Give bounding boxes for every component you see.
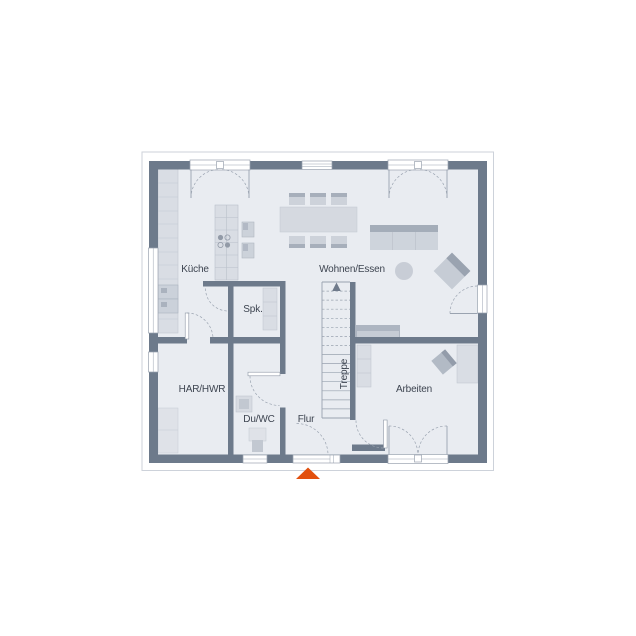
room-label-har-hwr: HAR/HWR <box>179 384 226 395</box>
room-label-arbeiten: Arbeiten <box>396 384 432 395</box>
entrance-arrow-icon <box>296 468 320 480</box>
wall-har-divider <box>228 287 234 456</box>
floor-plan: Küche Wohnen/Essen Spk. HAR/HWR Du/WC Fl… <box>0 0 636 636</box>
door-leaf-arbeiten <box>384 420 388 448</box>
door-leaf-har <box>185 313 189 339</box>
room-label-treppe: Treppe <box>339 358 350 389</box>
dining-table <box>280 207 357 232</box>
wall-kueche-har-left <box>158 337 187 344</box>
wall-stairs <box>350 282 356 420</box>
front-door <box>293 455 340 463</box>
room-label-flur: Flur <box>298 414 315 425</box>
desk <box>457 345 478 383</box>
coffee-table <box>395 262 413 280</box>
room-label-kueche: Küche <box>181 264 209 275</box>
chair-icon <box>310 236 326 248</box>
kitchen-island <box>215 205 238 280</box>
sofa <box>370 225 438 250</box>
window-kueche-left <box>149 248 159 333</box>
wall-flur-stub <box>352 445 385 452</box>
chair-icon <box>331 236 347 248</box>
chair-icon <box>289 236 305 248</box>
office-shelf <box>357 345 371 387</box>
french-door-arbeiten <box>388 455 448 464</box>
washbasin-icon <box>236 396 252 412</box>
room-label-spk: Spk. <box>243 304 262 315</box>
french-door-kueche <box>190 160 250 170</box>
french-door-wohnen <box>388 160 448 170</box>
wall-spk-right <box>280 281 286 374</box>
window-har-left <box>149 352 159 372</box>
floor-plan-drawing: Küche Wohnen/Essen Spk. HAR/HWR Du/WC Fl… <box>0 0 636 636</box>
pantry-shelf <box>263 288 277 330</box>
window-top <box>302 161 332 170</box>
wall-wohnen-arbeiten <box>356 337 479 344</box>
wall-duwc-right-lower <box>280 408 286 456</box>
chair-icon <box>310 193 326 205</box>
laundry-appliances <box>158 408 178 453</box>
kitchen-counter <box>158 169 178 333</box>
chair-icon <box>331 193 347 205</box>
room-wohnen-essen <box>280 169 478 337</box>
wall-spk-top <box>203 281 285 287</box>
door-leaf-duwc <box>248 372 280 376</box>
terrace-door-right <box>478 285 488 313</box>
window-duwc-bottom <box>243 455 267 463</box>
chair-icon <box>289 193 305 205</box>
room-label-du-wc: Du/WC <box>243 414 274 425</box>
room-label-wohnen-essen: Wohnen/Essen <box>319 264 385 275</box>
lowboard <box>356 325 400 338</box>
wall-spk-bottom <box>210 337 285 344</box>
